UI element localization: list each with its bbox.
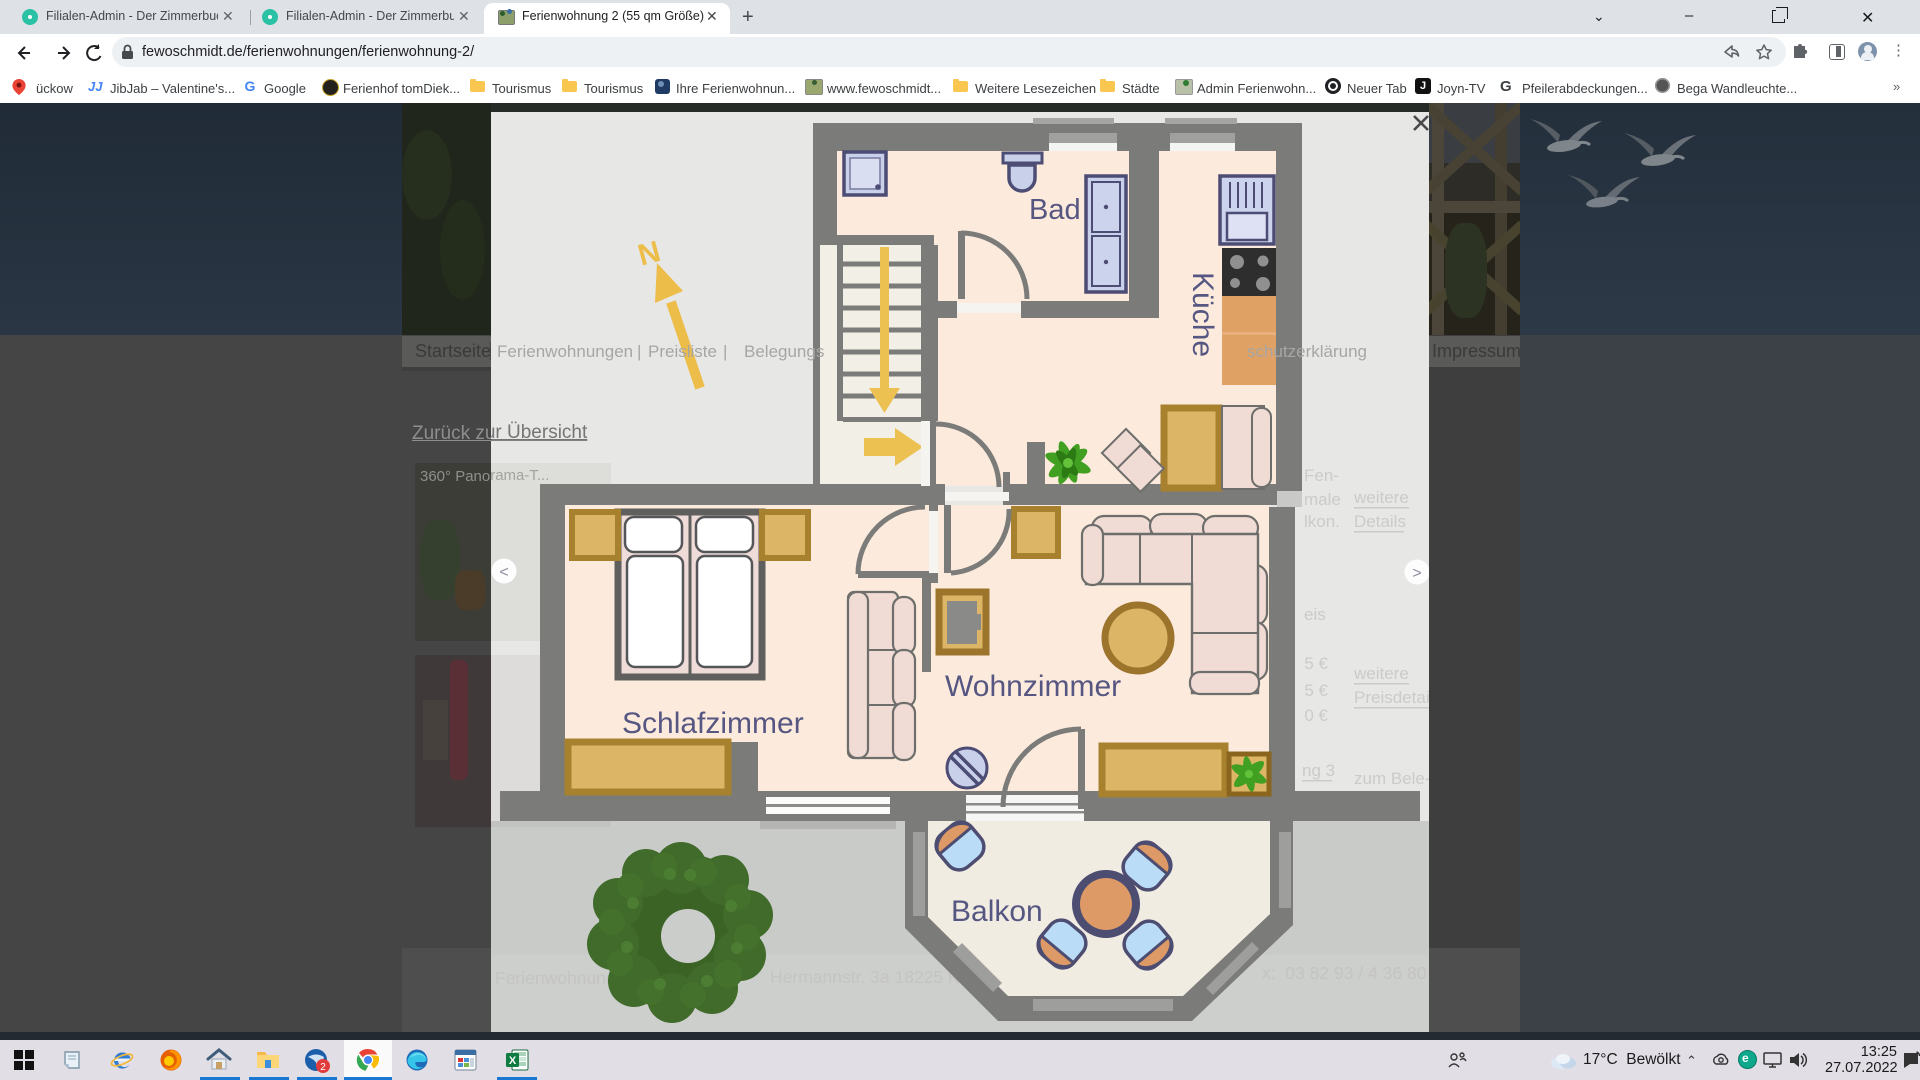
svg-text:2: 2 [320, 1062, 326, 1073]
svg-text:Balkon: Balkon [951, 895, 1043, 928]
svg-text:<: < [499, 564, 508, 581]
svg-text:5 €: 5 € [1304, 681, 1328, 700]
svg-text:|: | [637, 342, 641, 361]
svg-text:zum Bele-: zum Bele- [1354, 769, 1429, 788]
svg-text:x: 03 82 93 / 4 36 80: x: 03 82 93 / 4 36 80 [1262, 963, 1427, 983]
svg-text:Details: Details [1354, 512, 1406, 531]
svg-text:Bad: Bad [1029, 194, 1081, 226]
svg-text:eis: eis [1304, 605, 1326, 624]
svg-text:Hermannstr. 3a 18225 Kü: Hermannstr. 3a 18225 Kü [770, 967, 969, 987]
svg-text:Schlafzimmer: Schlafzimmer [622, 707, 804, 740]
svg-text:Preisdetails: Preisdetails [1354, 688, 1429, 707]
svg-text:ng 3: ng 3 [1302, 761, 1335, 780]
svg-text:Zurück zur Übersicht: Zurück zur Übersicht [491, 422, 588, 443]
svg-text:male: male [1304, 490, 1341, 509]
svg-text:0 €: 0 € [1304, 706, 1328, 725]
svg-text:lkon.: lkon. [1304, 512, 1340, 531]
svg-text:Fen-: Fen- [1304, 466, 1339, 485]
svg-text:Küche: Küche [1186, 272, 1219, 357]
svg-text:360° Panorama-T...: 360° Panorama-T... [491, 467, 549, 484]
svg-text:X: X [509, 1055, 517, 1067]
svg-text:Wohnzimmer: Wohnzimmer [945, 670, 1121, 703]
svg-text:Preisliste: Preisliste [648, 342, 717, 361]
svg-text:|: | [723, 342, 727, 361]
svg-text:5 €: 5 € [1304, 654, 1328, 673]
svg-text:weitere: weitere [1353, 488, 1409, 507]
svg-text:>: > [1412, 565, 1421, 582]
svg-text:weitere: weitere [1353, 664, 1409, 683]
svg-text:Belegungs: Belegungs [744, 342, 824, 361]
svg-text:Ferienwohnungen: Ferienwohnungen [497, 342, 633, 361]
svg-text:schutzerklärung: schutzerklärung [1247, 342, 1367, 361]
